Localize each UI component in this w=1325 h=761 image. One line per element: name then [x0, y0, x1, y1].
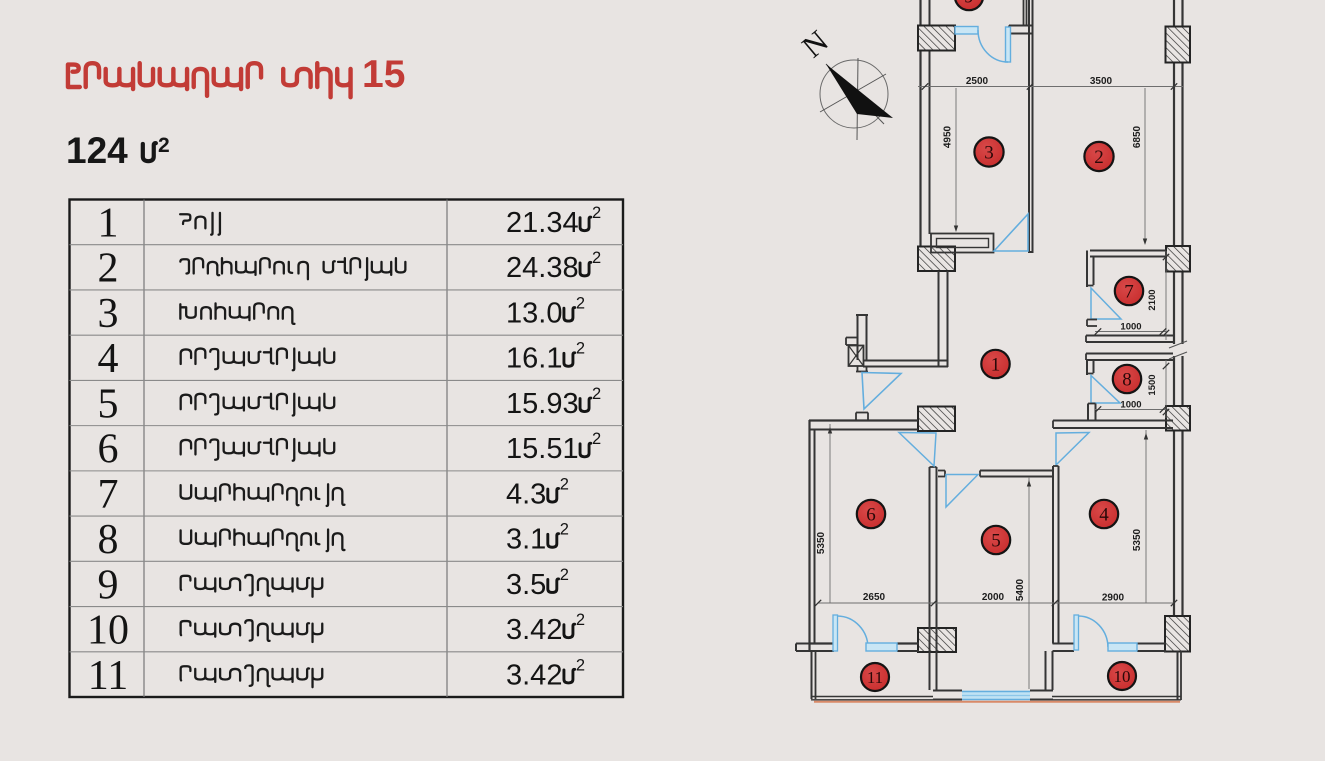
svg-text:2000: 2000 [982, 592, 1005, 603]
svg-text:8: 8 [1122, 369, 1132, 390]
svg-text:24.38: 24.38 [506, 252, 579, 284]
svg-text:2900: 2900 [1102, 593, 1125, 604]
svg-text:2: 2 [158, 134, 170, 157]
svg-text:2500: 2500 [966, 76, 989, 87]
svg-text:1000: 1000 [1120, 322, 1141, 333]
svg-text:1: 1 [991, 354, 1001, 375]
svg-text:16.1: 16.1 [506, 343, 562, 375]
svg-text:5350: 5350 [1132, 528, 1143, 551]
svg-text:9: 9 [98, 562, 119, 608]
svg-text:8: 8 [98, 517, 119, 563]
svg-text:11: 11 [867, 668, 883, 687]
svg-text:10: 10 [1114, 667, 1131, 686]
svg-text:6850: 6850 [1132, 125, 1143, 148]
svg-text:7: 7 [98, 472, 119, 518]
svg-text:2: 2 [576, 656, 585, 674]
svg-text:2: 2 [576, 340, 585, 358]
svg-text:2: 2 [592, 204, 601, 222]
svg-text:3: 3 [984, 142, 994, 163]
svg-text:15.51: 15.51 [506, 433, 579, 465]
svg-text:5350: 5350 [816, 531, 827, 554]
svg-text:5: 5 [98, 381, 119, 427]
svg-text:13.0: 13.0 [506, 297, 562, 329]
svg-text:2: 2 [576, 294, 585, 312]
svg-text:3: 3 [98, 291, 119, 337]
svg-text:5400: 5400 [1015, 578, 1026, 601]
svg-text:15: 15 [362, 53, 405, 96]
svg-text:6: 6 [98, 427, 119, 473]
svg-text:21.34: 21.34 [506, 207, 579, 239]
svg-text:2: 2 [592, 249, 601, 267]
svg-text:2: 2 [560, 475, 569, 493]
svg-text:3.42: 3.42 [506, 659, 562, 691]
svg-text:3.1: 3.1 [506, 524, 546, 556]
svg-text:3500: 3500 [1090, 76, 1113, 87]
svg-text:9: 9 [964, 0, 974, 7]
svg-text:2: 2 [560, 566, 569, 584]
svg-text:1500: 1500 [1147, 374, 1158, 395]
svg-text:10: 10 [87, 608, 129, 654]
svg-text:4: 4 [1099, 504, 1109, 525]
svg-text:15.93: 15.93 [506, 388, 579, 420]
svg-text:2: 2 [592, 430, 601, 448]
svg-text:4.3: 4.3 [506, 478, 546, 510]
svg-text:3.5: 3.5 [506, 569, 546, 601]
svg-text:4950: 4950 [943, 125, 954, 148]
svg-text:2: 2 [592, 385, 601, 403]
svg-text:2: 2 [98, 246, 119, 292]
svg-text:6: 6 [866, 504, 876, 525]
svg-text:2: 2 [576, 611, 585, 629]
svg-text:3.42: 3.42 [506, 614, 562, 646]
svg-text:5: 5 [991, 530, 1001, 551]
svg-text:2: 2 [560, 521, 569, 539]
svg-text:124: 124 [66, 130, 128, 171]
svg-text:4: 4 [98, 336, 119, 382]
svg-text:7: 7 [1124, 281, 1134, 302]
svg-text:1000: 1000 [1120, 400, 1141, 411]
svg-text:2: 2 [1094, 147, 1104, 168]
svg-text:2650: 2650 [863, 592, 886, 603]
svg-text:2100: 2100 [1147, 289, 1158, 310]
svg-text:11: 11 [88, 653, 128, 699]
svg-text:1: 1 [98, 201, 119, 247]
